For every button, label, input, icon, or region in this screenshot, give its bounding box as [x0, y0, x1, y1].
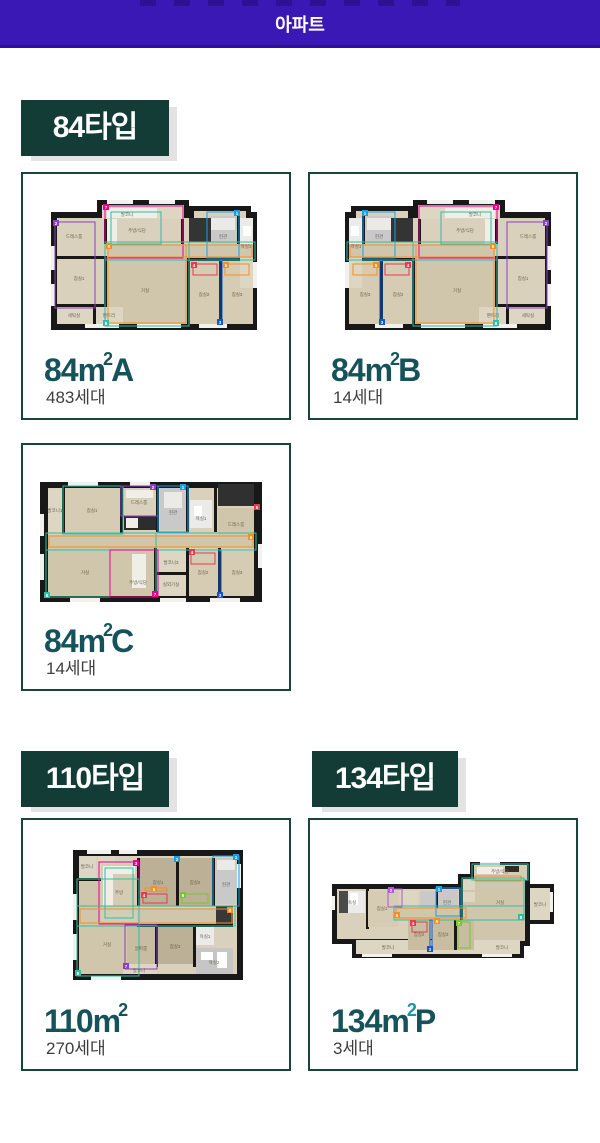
type-label-84: 84타입: [21, 100, 169, 156]
plan-units-134p: 3세대: [333, 1040, 374, 1057]
svg-text:침실2: 침실2: [190, 879, 201, 885]
plan-title-84b: 84m2B: [331, 354, 420, 386]
floorplan-134p-image: 욕실침실1현관주방/식당거실침실2침실3발코니발코니발코니21645738: [332, 862, 554, 964]
svg-text:거실: 거실: [103, 941, 111, 948]
svg-text:욕실: 욕실: [348, 899, 356, 906]
svg-text:주방/식당: 주방/식당: [128, 227, 146, 234]
top-banner: 아파트: [0, 0, 600, 48]
plan-title-134p: 134m2P: [331, 1005, 435, 1037]
svg-text:드레스룸: 드레스룸: [66, 233, 83, 240]
plan-units-110: 270세대: [46, 1040, 106, 1057]
svg-text:침실1: 침실1: [377, 905, 388, 911]
svg-text:욕실1: 욕실1: [200, 933, 211, 940]
plan-card-110[interactable]: 발코니주방침실1침실2현관거실알파룸침실3욕실1욕실2발코니321456897 …: [21, 818, 291, 1071]
type-label-110: 110타입: [21, 751, 169, 807]
svg-text:침실2: 침실2: [199, 291, 210, 297]
svg-text:현관: 현관: [169, 509, 177, 515]
svg-text:주방/식당: 주방/식당: [491, 868, 509, 875]
svg-text:침실3: 침실3: [360, 291, 371, 297]
svg-text:세탁실: 세탁실: [522, 312, 534, 319]
svg-text:발코니3: 발코니3: [164, 559, 179, 566]
svg-text:침실1: 침실1: [74, 275, 85, 281]
floorplan-84c-image: 침실1드레스룸발코니1현관욕실1드레스룸거실주방/식당발코니3실외기실침실2침실…: [40, 474, 265, 607]
svg-text:침실2: 침실2: [393, 291, 404, 297]
svg-text:발코니: 발코니: [121, 211, 133, 218]
svg-text:현관: 현관: [219, 233, 227, 239]
svg-text:침실3: 침실3: [232, 291, 243, 297]
svg-text:욕실1: 욕실1: [351, 243, 362, 250]
svg-text:드레스룸: 드레스룸: [131, 499, 148, 506]
banner-title: 아파트: [0, 11, 600, 37]
svg-text:발코니: 발코니: [496, 944, 508, 951]
svg-text:침실3: 침실3: [170, 943, 181, 949]
svg-text:발코니: 발코니: [382, 944, 394, 951]
svg-text:현관: 현관: [375, 233, 383, 239]
svg-text:침실1: 침실1: [518, 275, 529, 281]
plan-title-84a: 84m2A: [44, 354, 133, 386]
svg-text:침실2: 침실2: [414, 931, 425, 937]
svg-text:침실3: 침실3: [232, 569, 243, 575]
svg-text:침실2: 침실2: [198, 569, 209, 575]
svg-text:현관: 현관: [443, 899, 451, 905]
svg-text:주방: 주방: [115, 889, 123, 896]
svg-text:발코니: 발코니: [534, 901, 546, 908]
svg-text:팬트리: 팬트리: [103, 312, 115, 319]
svg-text:발코니1: 발코니1: [48, 507, 63, 514]
svg-text:발코니: 발코니: [469, 211, 481, 218]
svg-text:실외기실: 실외기실: [163, 581, 180, 588]
svg-text:발코니: 발코니: [81, 863, 93, 870]
svg-text:거실: 거실: [141, 287, 149, 294]
floorplan-84b-image: 침실1거실침실2침실3주방/식당현관욕실1발코니드레스룸세탁실팬트리721684…: [331, 200, 561, 335]
plan-card-84b[interactable]: 침실1거실침실2침실3주방/식당현관욕실1발코니드레스룸세탁실팬트리721684…: [308, 172, 578, 420]
plan-title-110: 110m2: [44, 1005, 126, 1037]
floorplan-110-image: 발코니주방침실1침실2현관거실알파룸침실3욕실1욕실2발코니321456897: [67, 844, 249, 986]
cutoff-title-fragments: [140, 0, 460, 6]
svg-text:욕실1: 욕실1: [241, 243, 252, 250]
svg-text:팬트리: 팬트리: [487, 312, 499, 319]
plan-title-84c: 84m2C: [44, 625, 133, 657]
svg-text:거실: 거실: [496, 899, 504, 906]
svg-text:드레스룸: 드레스룸: [228, 521, 245, 528]
svg-text:욕실1: 욕실1: [196, 515, 207, 522]
svg-text:현관: 현관: [222, 881, 230, 887]
svg-text:세탁실: 세탁실: [68, 312, 80, 319]
svg-text:주방/식당: 주방/식당: [456, 227, 474, 234]
type-label-134: 134타입: [312, 751, 458, 807]
svg-text:알파룸: 알파룸: [135, 945, 147, 952]
svg-text:드레스룸: 드레스룸: [520, 233, 537, 240]
svg-text:거실: 거실: [453, 287, 461, 294]
svg-text:침실3: 침실3: [438, 931, 449, 937]
svg-text:침실1: 침실1: [87, 507, 98, 513]
svg-text:욕실2: 욕실2: [209, 959, 220, 966]
plan-units-84b: 14세대: [333, 389, 383, 406]
plan-card-84a[interactable]: 침실1거실침실2침실3주방/식당현관욕실1발코니드레스룸세탁실팬트리721684…: [21, 172, 291, 420]
plan-units-84a: 483세대: [46, 389, 106, 406]
plan-card-134p[interactable]: 욕실침실1현관주방/식당거실침실2침실3발코니발코니발코니21645738 13…: [308, 818, 578, 1071]
plan-card-84c[interactable]: 침실1드레스룸발코니1현관욕실1드레스룸거실주방/식당발코니3실외기실침실2침실…: [21, 443, 291, 691]
svg-text:침실1: 침실1: [153, 879, 164, 885]
plan-units-84c: 14세대: [46, 660, 96, 677]
svg-text:주방/식당: 주방/식당: [129, 579, 147, 586]
svg-text:발코니: 발코니: [133, 967, 145, 974]
svg-text:거실: 거실: [81, 569, 89, 576]
floorplan-84a-image: 침실1거실침실2침실3주방/식당현관욕실1발코니드레스룸세탁실팬트리721684…: [41, 200, 271, 335]
